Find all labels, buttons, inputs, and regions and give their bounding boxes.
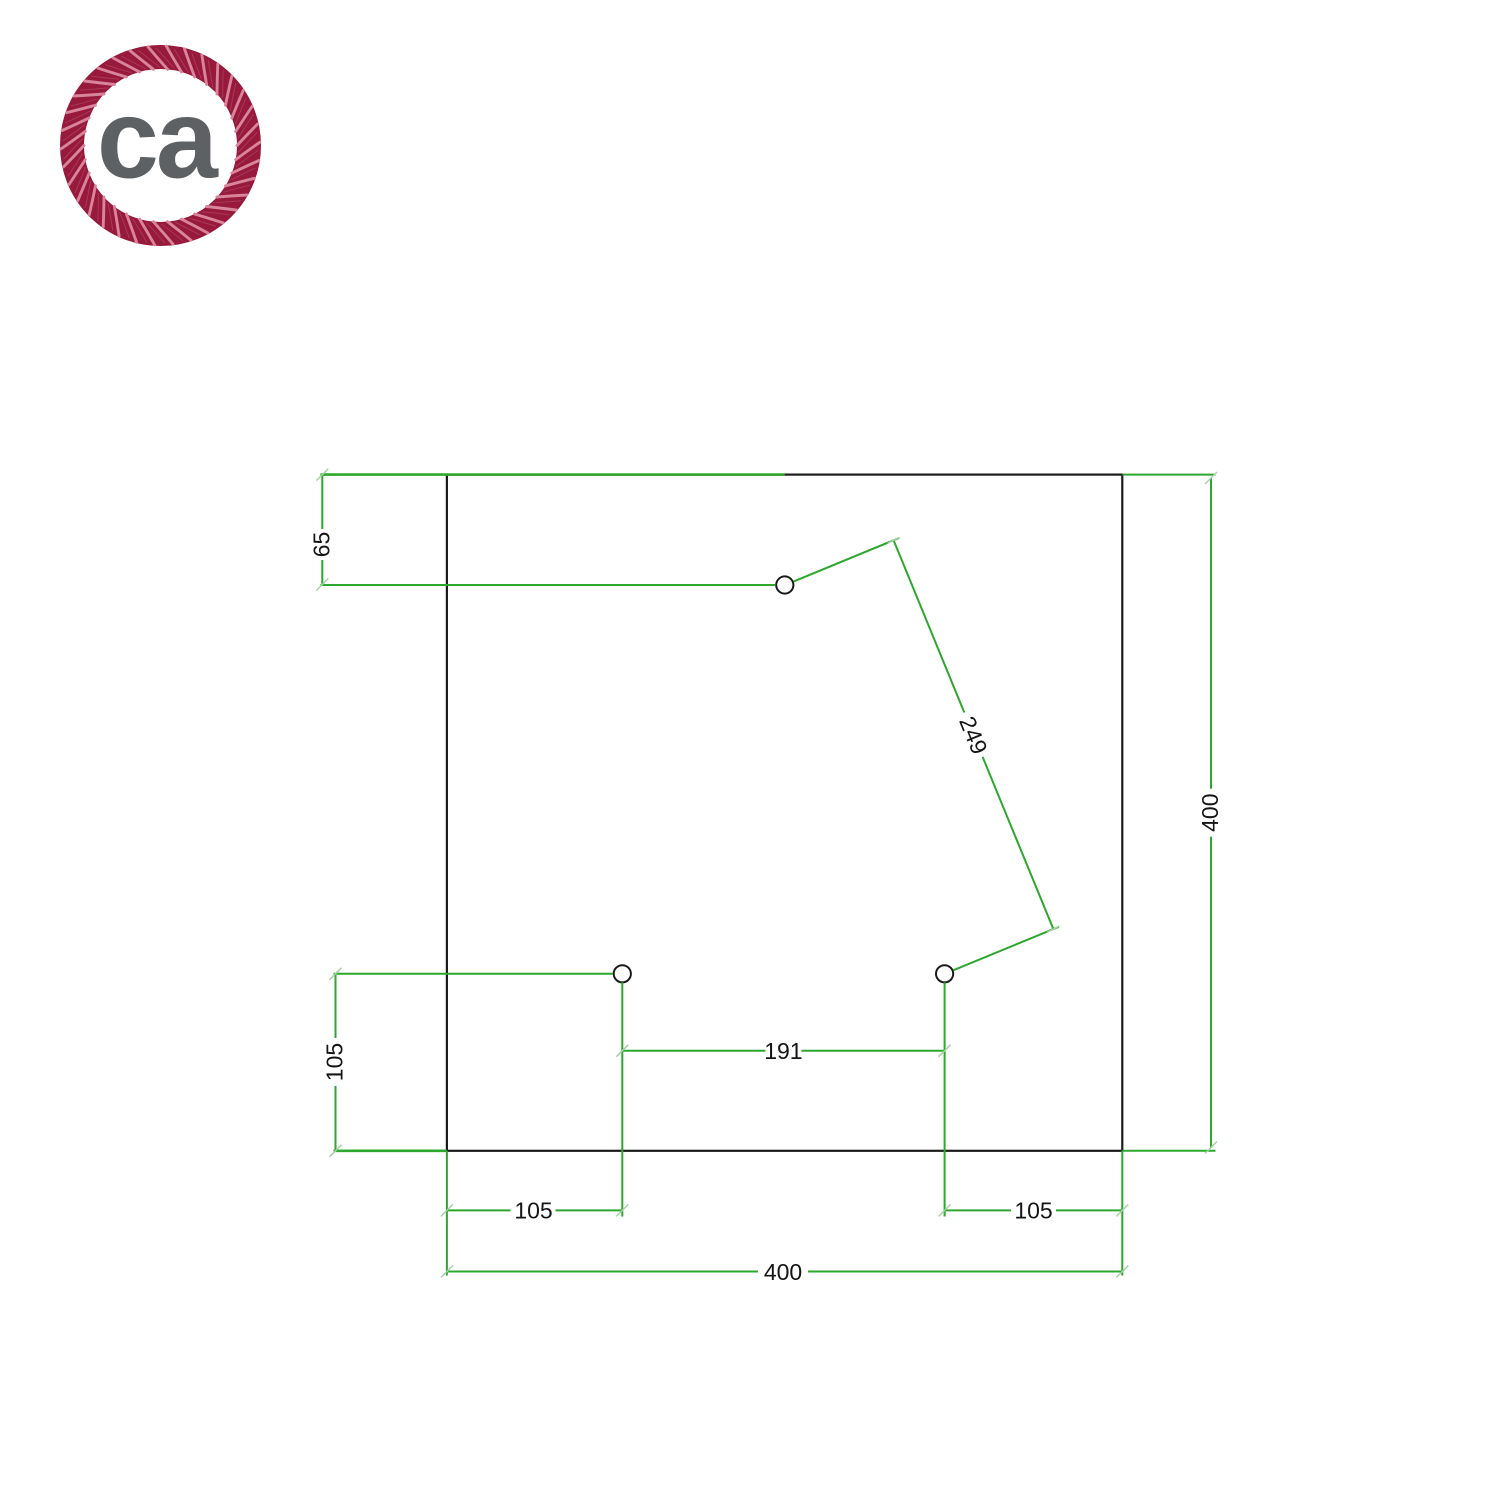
svg-text:105: 105 — [1014, 1198, 1052, 1224]
svg-text:191: 191 — [764, 1038, 802, 1064]
svg-text:105: 105 — [514, 1198, 552, 1224]
svg-text:400: 400 — [1197, 794, 1223, 832]
svg-text:65: 65 — [309, 532, 335, 558]
svg-text:400: 400 — [764, 1259, 802, 1285]
svg-text:105: 105 — [322, 1043, 348, 1081]
svg-text:ca: ca — [97, 76, 220, 202]
